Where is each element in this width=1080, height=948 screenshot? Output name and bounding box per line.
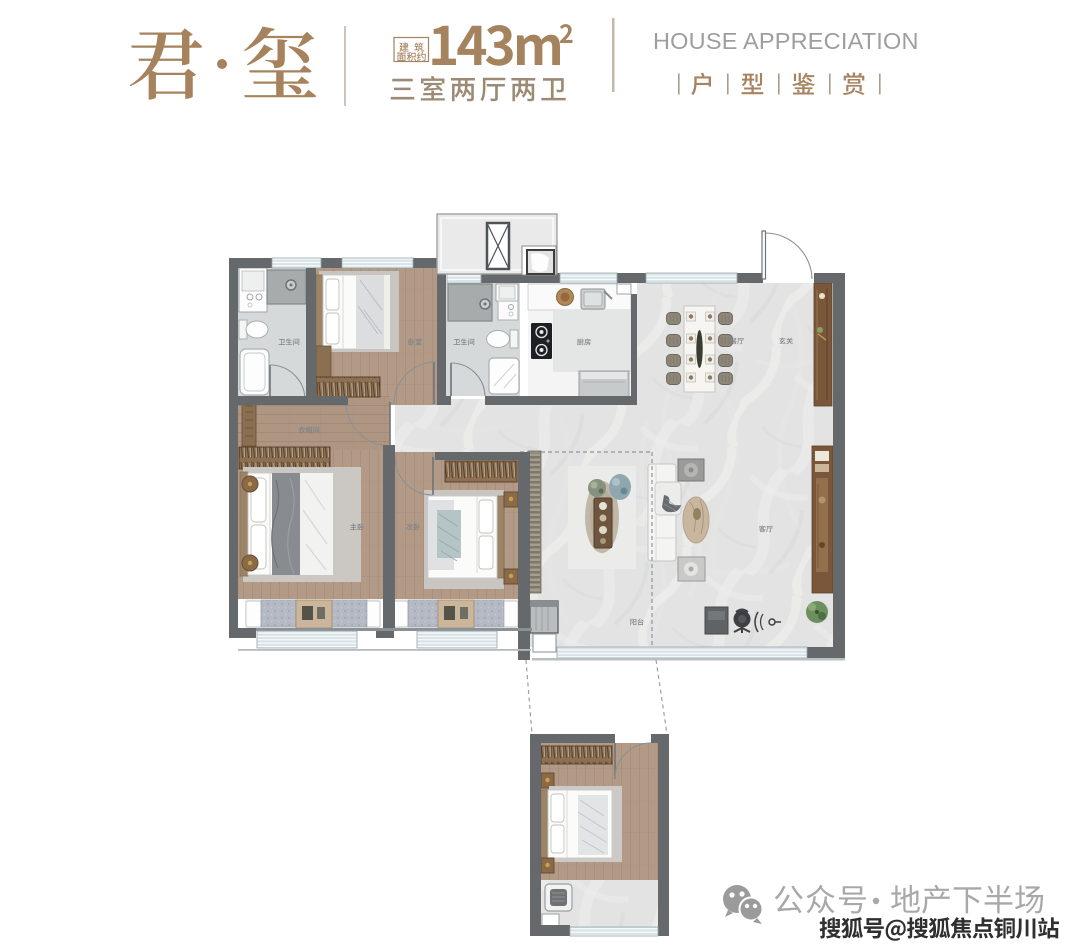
svg-text:HOUSE APPRECIATION: HOUSE APPRECIATION [653,28,919,54]
